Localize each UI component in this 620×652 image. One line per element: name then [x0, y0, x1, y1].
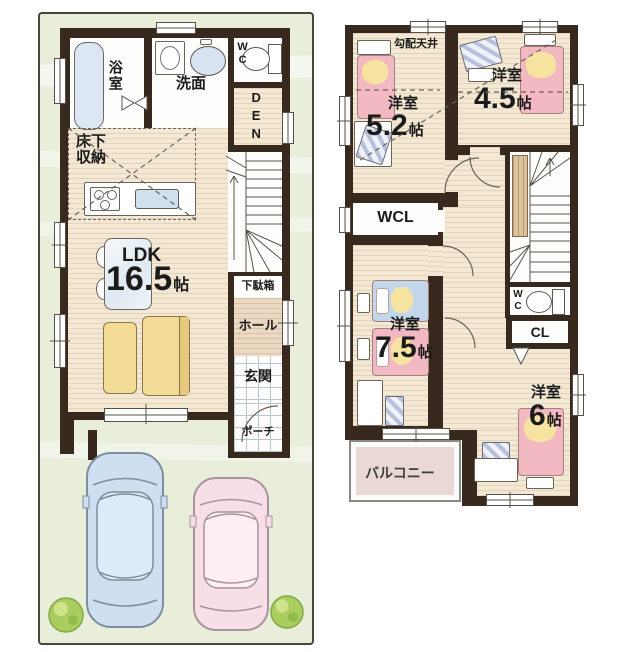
entrance-label: 玄関: [234, 369, 282, 384]
room6-size: 6帖: [529, 399, 562, 433]
window: [486, 494, 534, 506]
underfloor-storage-label: 床下 収納: [76, 134, 106, 166]
window: [339, 290, 351, 362]
wcl-label: WCL: [353, 210, 438, 227]
window: [54, 222, 66, 268]
window: [572, 84, 584, 126]
window: [382, 428, 450, 440]
window: [54, 314, 66, 368]
desk: [468, 68, 494, 82]
window: [522, 21, 558, 33]
chair: [482, 442, 510, 459]
washroom-label: 洗面: [156, 76, 226, 92]
window: [572, 374, 584, 416]
shoebox-label: 下駄箱: [234, 281, 282, 293]
door-opening: [445, 160, 458, 192]
headboard: [357, 40, 391, 55]
toilet-tank: [552, 289, 565, 315]
room45-size: 4.5帖: [474, 82, 532, 116]
corridor-floor: [443, 207, 505, 318]
balcony-label: バルコニー: [365, 466, 435, 481]
stairs2-wood-strip: [512, 155, 528, 237]
washbasin-sink: [190, 46, 226, 76]
door-opening: [470, 147, 500, 157]
kitchen-counter: [84, 182, 196, 216]
den-label: DEN: [249, 90, 263, 144]
porch-label: ポーチ: [234, 427, 282, 439]
kitchen-sink: [135, 189, 179, 209]
desk: [357, 380, 383, 426]
window: [339, 96, 351, 146]
bathroom-label: 浴室: [108, 60, 123, 92]
washing-machine: [155, 41, 185, 75]
balcony: バルコニー: [349, 440, 461, 502]
wc1-label: WC: [236, 41, 248, 67]
fence-post: [88, 430, 97, 460]
hall-label: ホール: [234, 319, 282, 333]
sofa-chaise: [103, 322, 137, 394]
chair: [385, 396, 404, 426]
floor-plan-image: 浴室 洗面 WC DEN 床下 収納 LDK 16.5帖 下駄箱 ホール 玄関 …: [0, 0, 620, 652]
side-table: [357, 338, 370, 360]
window: [104, 408, 188, 422]
window: [410, 21, 446, 33]
window: [282, 112, 294, 144]
faucet: [200, 39, 212, 45]
wc2-label: WC: [512, 289, 523, 313]
stairs1-floor: [226, 152, 282, 272]
window: [156, 22, 196, 34]
ldk-size: 16.5帖: [106, 260, 189, 299]
fence-post: [60, 420, 74, 454]
sofa: [142, 316, 190, 396]
stove: [90, 187, 120, 211]
sofa-back: [179, 317, 189, 395]
window: [282, 300, 294, 346]
window: [339, 207, 351, 233]
bed-footboard: [526, 477, 554, 489]
toilet-tank: [268, 44, 282, 74]
room75-size: 7.5帖: [375, 331, 433, 365]
corridor-floor-upper: [458, 155, 505, 207]
headboard: [524, 34, 556, 46]
side-table: [357, 293, 370, 313]
window: [54, 58, 66, 104]
room52-size: 5.2帖: [366, 109, 424, 143]
sloped-ceiling-label: 勾配天井: [394, 39, 438, 51]
bathtub: [74, 42, 104, 130]
cl-label: CL: [512, 325, 568, 340]
toilet-icon: [526, 291, 552, 313]
desk: [474, 458, 518, 482]
door-opening: [428, 246, 443, 276]
